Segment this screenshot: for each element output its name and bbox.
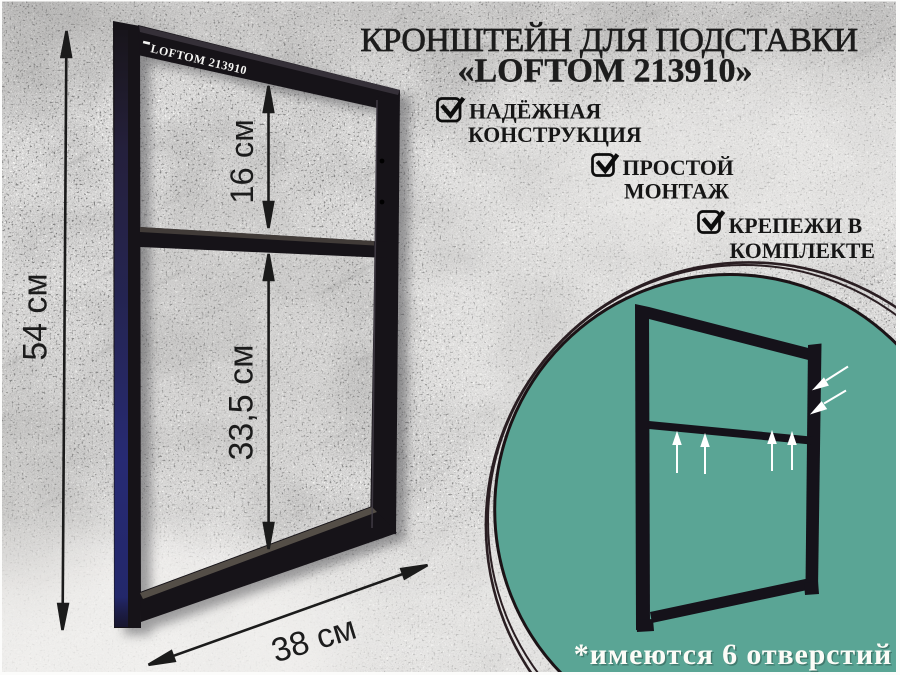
- svg-text:16 см: 16 см: [223, 119, 260, 204]
- svg-text:МОНТАЖ: МОНТАЖ: [624, 180, 730, 204]
- svg-text:33,5 см: 33,5 см: [223, 345, 261, 461]
- svg-text:54 см: 54 см: [17, 273, 55, 360]
- svg-text:*имеются 6 отверстий: *имеются 6 отверстий: [574, 638, 892, 671]
- svg-text:НАДЁЖНАЯ: НАДЁЖНАЯ: [469, 100, 601, 124]
- svg-text:КОМПЛЕКТЕ: КОМПЛЕКТЕ: [730, 239, 875, 263]
- svg-text:«LOFTOM 213910»: «LOFTOM 213910»: [458, 53, 753, 90]
- svg-text:ПРОСТОЙ: ПРОСТОЙ: [623, 156, 734, 180]
- svg-text:КОНСТРУКЦИЯ: КОНСТРУКЦИЯ: [468, 123, 642, 147]
- svg-text:КРЕПЕЖИ В: КРЕПЕЖИ В: [729, 214, 863, 238]
